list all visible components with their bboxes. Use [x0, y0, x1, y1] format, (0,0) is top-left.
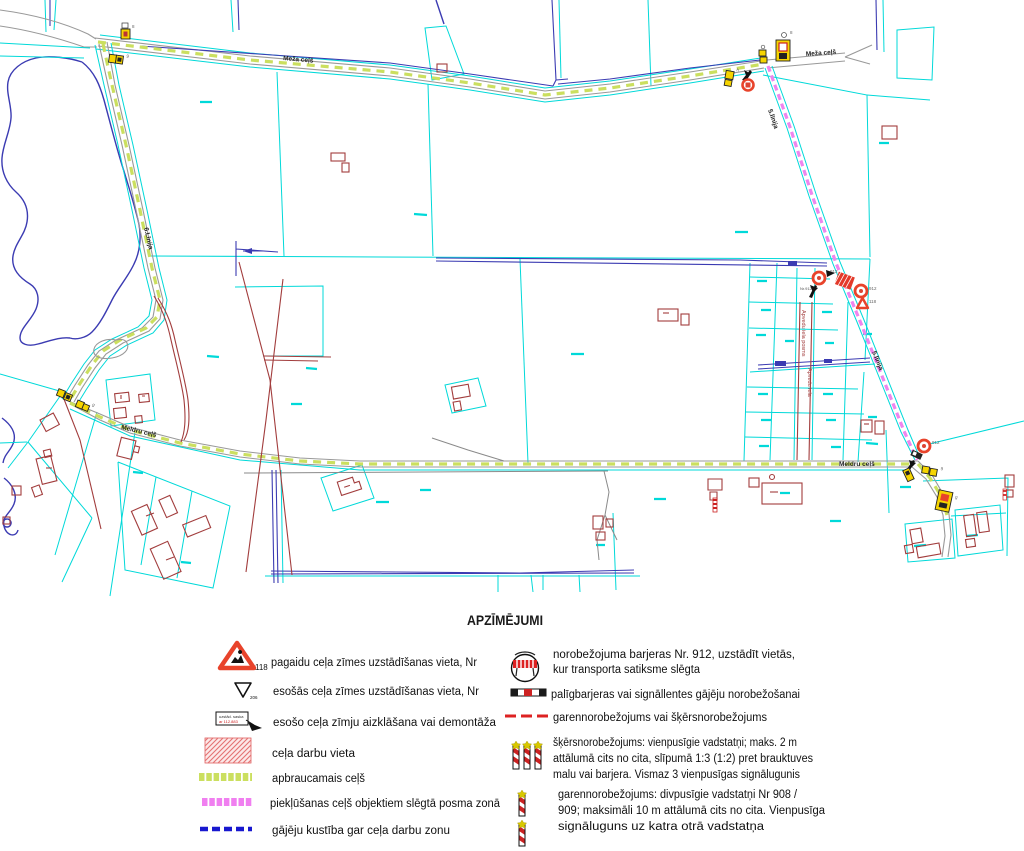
svg-text:norobežojuma barjeras Nr. 912,: norobežojuma barjeras Nr. 912, uzstādīt …	[553, 649, 795, 661]
svg-text:ceļa darbu vieta: ceļa darbu vieta	[272, 748, 356, 760]
svg-text:piekļūšanas ceļš objektiem slē: piekļūšanas ceļš objektiem slēgtā posma …	[270, 798, 501, 810]
svg-text:gājēju kustība gar ceļa darbu: gājēju kustība gar ceļa darbu zonu	[272, 825, 450, 837]
svg-text:esošo ceļa zīmju aizklāšana va: esošo ceļa zīmju aizklāšana vai demontāž…	[273, 717, 497, 729]
svg-text:kur transporta satiksme slēgta: kur transporta satiksme slēgta	[553, 664, 701, 676]
svg-text:Meldru ceļš: Meldru ceļš	[839, 461, 875, 468]
svg-text:garennorobežojums: divpusīgie: garennorobežojums: divpusīgie vadstatņi …	[558, 789, 798, 801]
svg-text:ar 112.883: ar 112.883	[219, 719, 239, 724]
svg-text:garennorobežojums vai šķērsnor: garennorobežojums vai šķērsnorobežojums	[553, 712, 767, 724]
svg-text:malu vai barjera. Vismaz 3 vie: malu vai barjera. Vismaz 3 vienpusīgas s…	[553, 769, 800, 781]
svg-text:912: 912	[932, 440, 940, 445]
svg-text:Nr.912: Nr.912	[800, 286, 813, 291]
svg-text:118: 118	[869, 299, 877, 304]
svg-text:APZĪMĒJUMI: APZĪMĒJUMI	[467, 612, 543, 628]
svg-text:912: 912	[869, 286, 877, 291]
svg-text:apbraucamais ceļš: apbraucamais ceļš	[272, 773, 365, 785]
svg-text:palīgbarjeras vai signāllentes: palīgbarjeras vai signāllentes gājēju no…	[551, 689, 800, 701]
svg-text:signāluguns uz katra otrā vads: signāluguns uz katra otrā vadstatņa	[558, 821, 765, 833]
svg-text:909; maksimāli 10 m attālumā c: 909; maksimāli 10 m attālumā cits no cit…	[558, 805, 826, 817]
svg-text:attālumā cits no cita, slīpumā: attālumā cits no cita, slīpumā 1:3 (1:2)…	[553, 753, 813, 765]
svg-text:Apvedu iela: Apvedu iela	[806, 368, 812, 398]
svg-text:206: 206	[250, 695, 258, 700]
svg-text:esošās ceļa zīmes uzstādīšanas: esošās ceļa zīmes uzstādīšanas vieta, Nr	[273, 686, 479, 698]
svg-text:pagaidu ceļa zīmes uzstādīšana: pagaidu ceļa zīmes uzstādīšanas vieta, N…	[271, 657, 477, 669]
svg-text:Apvedu iela posms: Apvedu iela posms	[800, 310, 806, 357]
svg-text:118: 118	[255, 663, 268, 672]
svg-text:šķērsnorobežojums: vienpusīgie: šķērsnorobežojums: vienpusīgie vadstatņi…	[553, 737, 797, 749]
